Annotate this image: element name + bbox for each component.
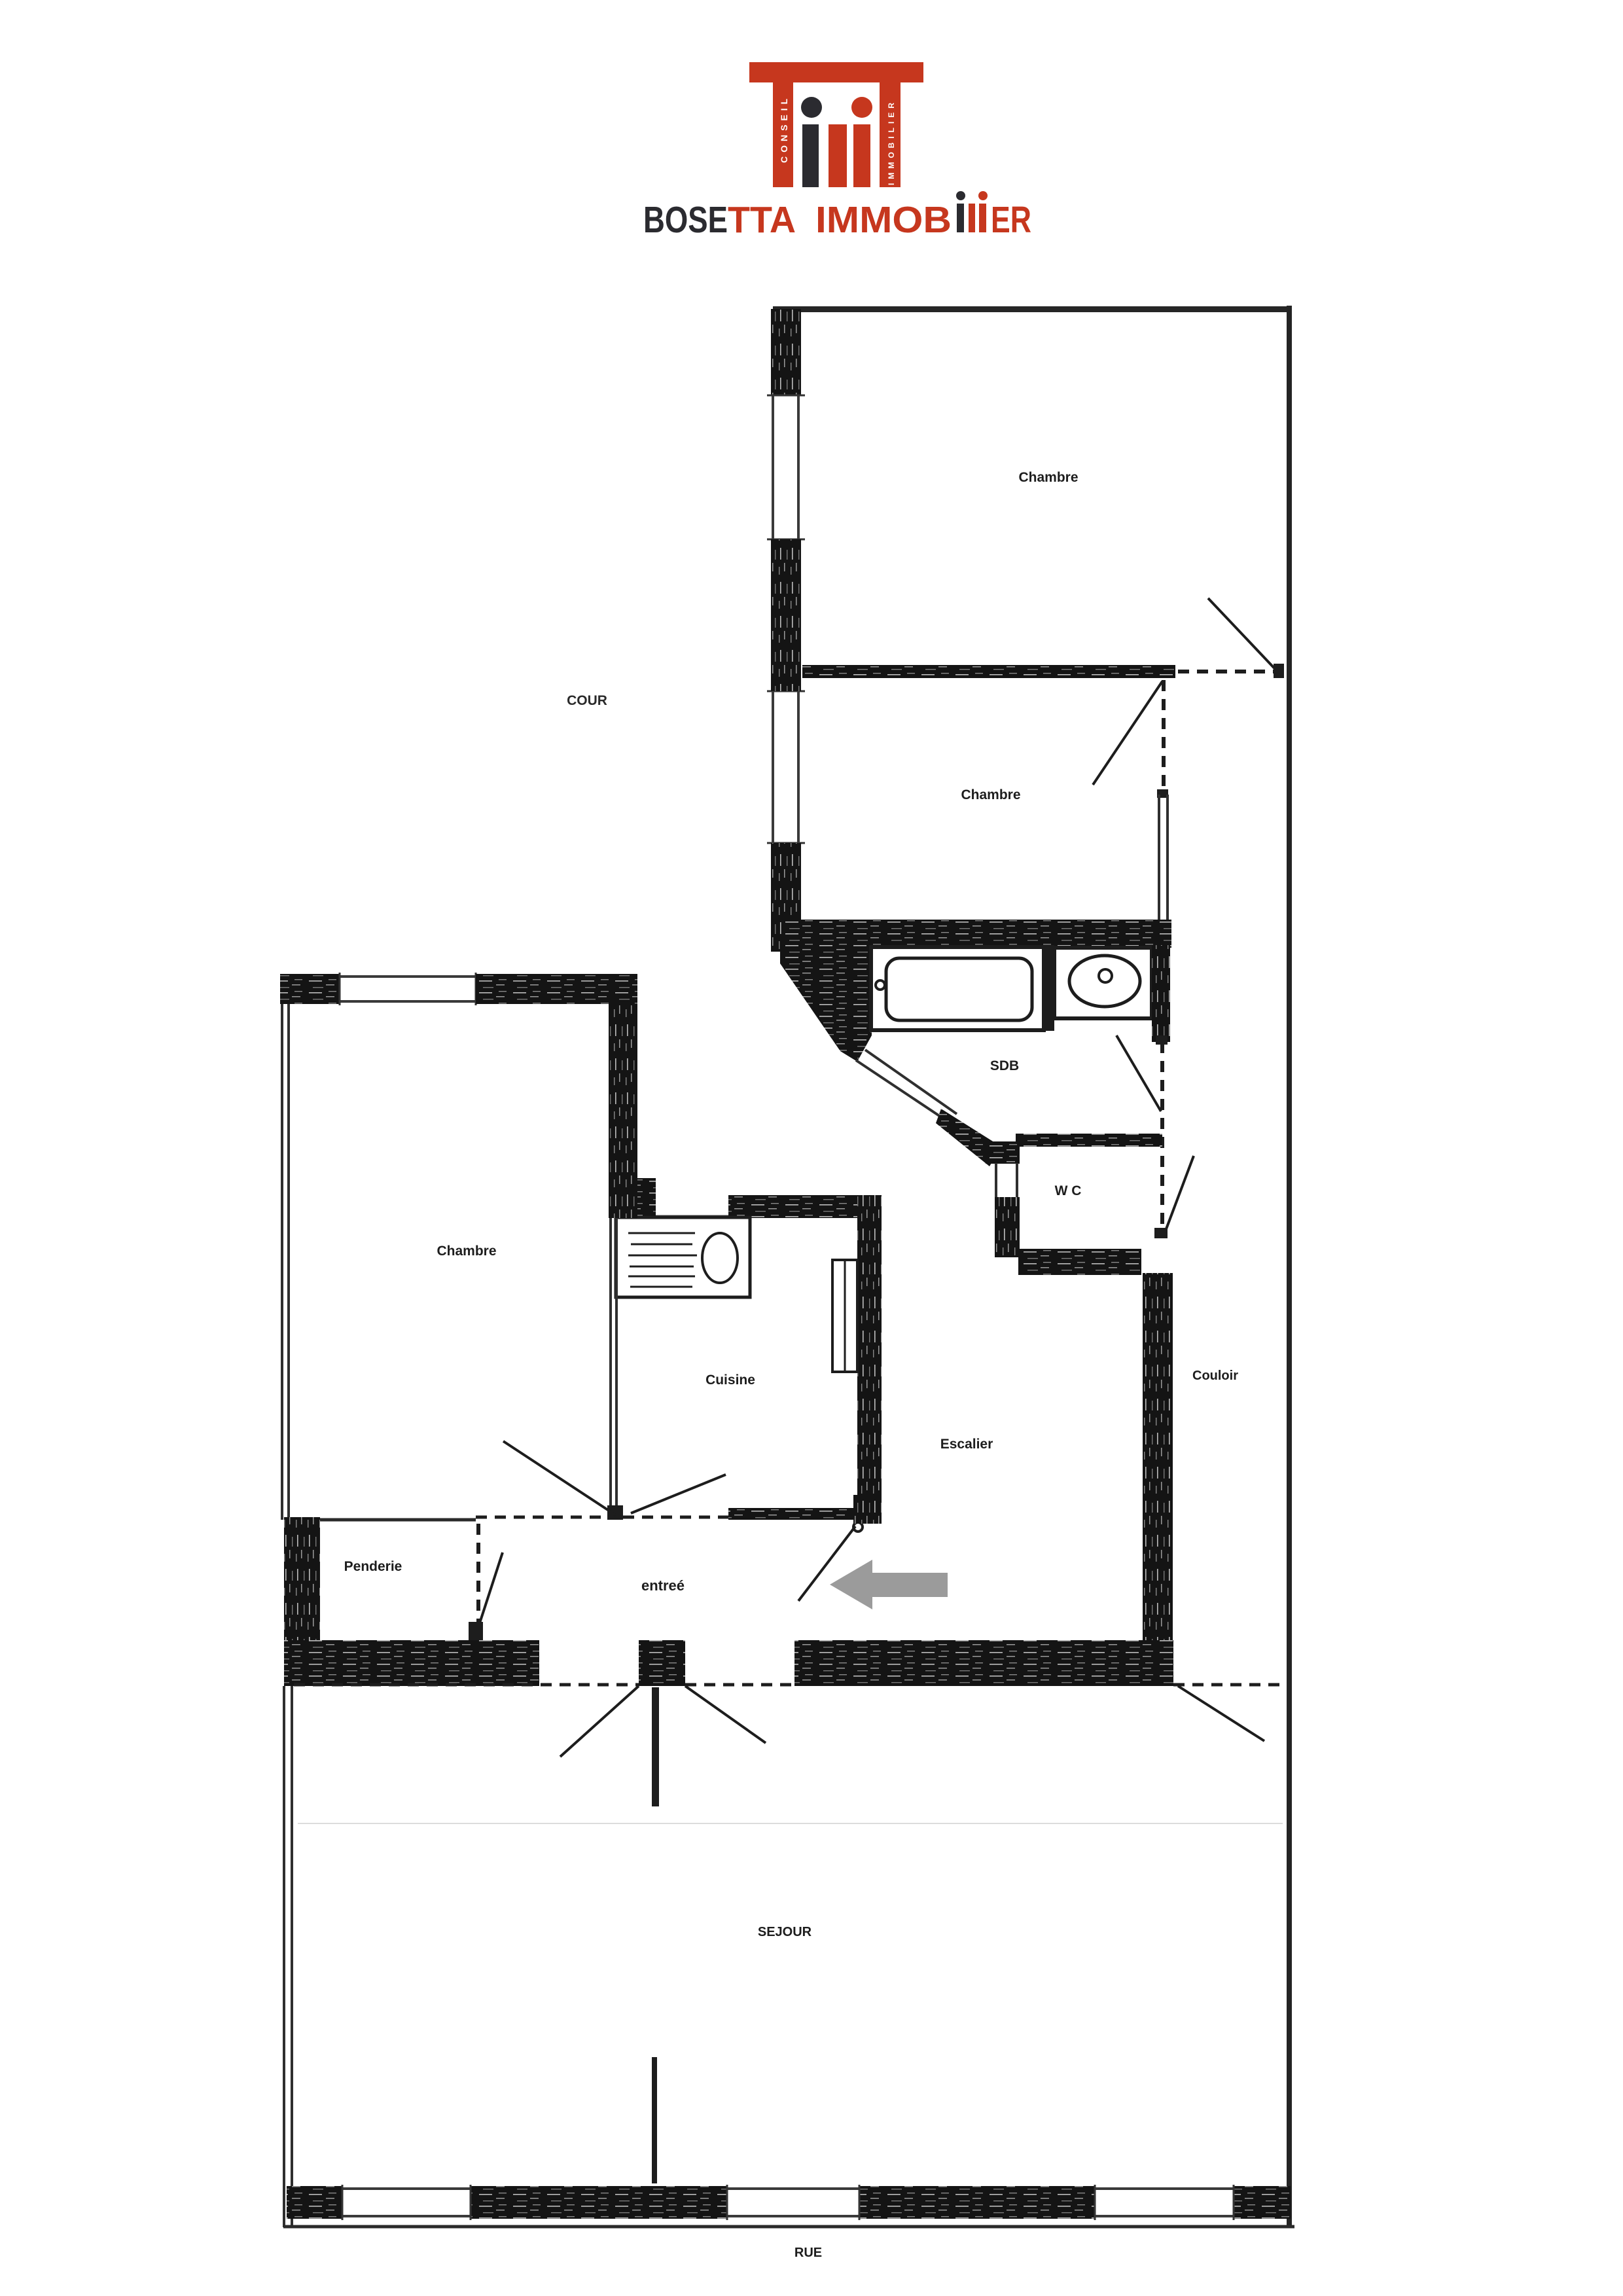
svg-text:IMMOBILIER: IMMOBILIER bbox=[887, 99, 896, 185]
svg-text:BOSE: BOSE bbox=[643, 199, 728, 241]
svg-text:Couloir: Couloir bbox=[1192, 1369, 1238, 1383]
svg-text:Escalier: Escalier bbox=[940, 1437, 993, 1452]
svg-text:Chambre: Chambre bbox=[1018, 470, 1078, 485]
svg-text:Cuisine: Cuisine bbox=[705, 1372, 755, 1388]
svg-text:SEJOUR: SEJOUR bbox=[758, 1925, 812, 1939]
svg-text:RUE: RUE bbox=[794, 2246, 822, 2260]
svg-text:W C: W C bbox=[1055, 1183, 1082, 1198]
svg-text:Penderie: Penderie bbox=[344, 1559, 402, 1574]
svg-text:SDB: SDB bbox=[990, 1058, 1019, 1073]
svg-text:TTA: TTA bbox=[728, 199, 796, 241]
svg-text:IMMOB: IMMOB bbox=[815, 199, 952, 241]
svg-text:entreé: entreé bbox=[641, 1577, 685, 1594]
svg-text:ER: ER bbox=[991, 199, 1031, 241]
svg-text:CONSEIL: CONSEIL bbox=[779, 95, 789, 163]
svg-text:Chambre: Chambre bbox=[437, 1244, 496, 1259]
svg-text:Chambre: Chambre bbox=[961, 787, 1020, 802]
svg-text:COUR: COUR bbox=[567, 693, 607, 708]
